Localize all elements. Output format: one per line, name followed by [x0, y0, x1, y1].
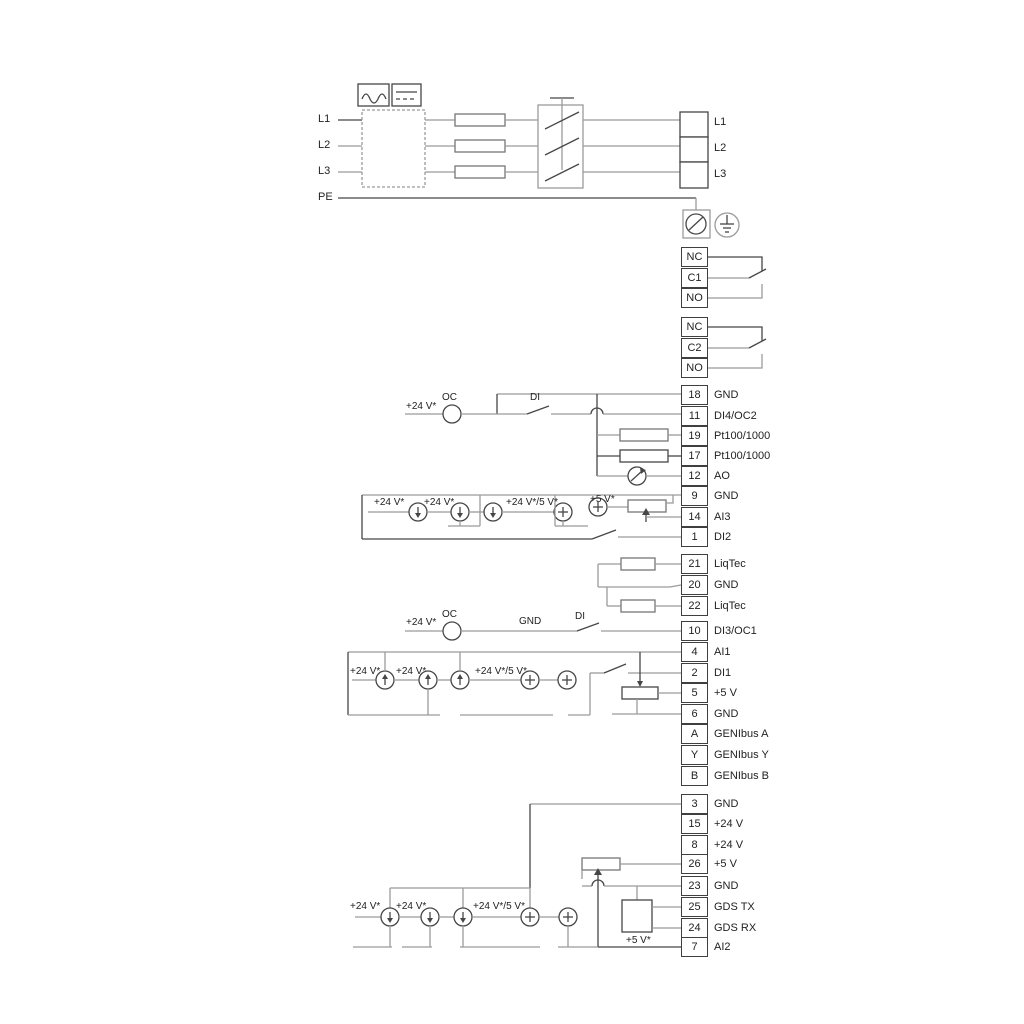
wiring-diagram: L1 L2 L3 PE L1 L2 L3 NC C1 NO NC C2 NO 1… [0, 0, 1024, 1024]
annotation-5v: +5 V* [590, 494, 615, 506]
terminal-label-26: +5 V [714, 858, 737, 871]
liqtec-circuit [598, 558, 681, 612]
terminal-number: 22 [688, 600, 700, 612]
open-collector-circle-icon [443, 405, 461, 423]
terminal-cell-14: 14 [681, 507, 708, 527]
relay2-terminal-c2: C2 [681, 338, 708, 358]
annotation-24v: +24 V* [406, 401, 436, 413]
terminal-cell-19: 19 [681, 426, 708, 446]
power-in-label-l2: L2 [318, 139, 330, 152]
resistor-icon [620, 429, 668, 441]
terminal-number: 3 [691, 798, 697, 810]
terminal-label-12: AO [714, 470, 730, 483]
relay1-terminal-c1: C1 [681, 268, 708, 288]
digital-input-switch-icon [604, 664, 626, 673]
terminal-label-11: DI4/OC2 [714, 410, 757, 423]
terminal-cell-23: 23 [681, 876, 708, 896]
terminal-label-6: GND [714, 708, 738, 721]
terminal-cell-6: 6 [681, 704, 708, 724]
terminal-cell-17: 17 [681, 446, 708, 466]
terminal-label-b: GENIbus B [714, 770, 769, 783]
terminal-number: 10 [688, 625, 700, 637]
terminal-cell-21: 21 [681, 554, 708, 574]
terminal-number: 25 [688, 901, 700, 913]
terminal-label-17: Pt100/1000 [714, 450, 770, 463]
annotation-oc: OC [442, 609, 457, 621]
annotation-24v: +24 V* [374, 497, 404, 509]
terminal-cell-4: 4 [681, 642, 708, 662]
terminal-label-20: GND [714, 579, 738, 592]
terminal-label-9: GND [714, 490, 738, 503]
annotation-oc: OC [442, 392, 457, 404]
terminal-number: 26 [688, 858, 700, 870]
mains-out-label-l2: L2 [714, 142, 726, 155]
annotation-24v-5v: +24 V*/5 V* [506, 497, 558, 509]
di3-oc1-circuit [405, 622, 681, 640]
terminal-number: 20 [688, 579, 700, 591]
terminal-cell-11: 11 [681, 406, 708, 426]
ai2-sensor-options [353, 908, 598, 947]
terminal-label-23: GND [714, 880, 738, 893]
mains-out-label-l1: L1 [714, 116, 726, 129]
potentiometer-icon [622, 687, 658, 699]
terminal-number: 14 [688, 511, 700, 523]
relay1-terminal-nc: NC [681, 247, 708, 267]
resistor-icon [621, 600, 655, 612]
terminal-number: 18 [688, 389, 700, 401]
relay-1-changeover-contact-icon [708, 257, 766, 298]
terminal-label-1: DI2 [714, 531, 731, 544]
annotation-24v: +24 V* [350, 666, 380, 678]
pe-ground [683, 210, 739, 238]
resistor-icon [620, 450, 668, 462]
annotation-24v: +24 V* [350, 901, 380, 913]
relay-terminal-label: NC [687, 251, 703, 263]
terminal-label-25: GDS TX [714, 901, 755, 914]
fuses [425, 114, 538, 178]
terminal-number: 2 [691, 667, 697, 679]
relay-terminal-label: C1 [687, 272, 701, 284]
annotation-24v: +24 V* [396, 666, 426, 678]
terminal-cell-25: 25 [681, 897, 708, 917]
terminal-label-a: GENIbus A [714, 728, 768, 741]
terminal-label-18: GND [714, 389, 738, 402]
power-in-label-l1: L1 [318, 113, 330, 126]
digital-input-switch-icon [527, 406, 549, 414]
relay2-terminal-nc: NC [681, 317, 708, 337]
terminal-number: 8 [691, 839, 697, 851]
terminal-cell-2: 2 [681, 663, 708, 683]
terminal-cell-24: 24 [681, 918, 708, 938]
terminal-cell-3: 3 [681, 794, 708, 814]
terminal-label-8: +24 V [714, 839, 743, 852]
relay-terminal-label: C2 [687, 342, 701, 354]
terminal-label-19: Pt100/1000 [714, 430, 770, 443]
terminal-cell-22: 22 [681, 596, 708, 616]
relay-2-changeover-contact-icon [708, 327, 766, 368]
potentiometer-icon [582, 858, 620, 870]
annotation-di: DI [530, 392, 540, 404]
fuse-icon [455, 114, 505, 126]
terminal-number: 15 [688, 818, 700, 830]
fuse-icon [455, 166, 505, 178]
terminal-cell-7: 7 [681, 937, 708, 957]
relay-terminal-label: NO [686, 292, 703, 304]
annotation-gnd: GND [519, 616, 541, 628]
terminal-label-22: LiqTec [714, 600, 746, 613]
terminal-number: 1 [691, 531, 697, 543]
terminal-label-14: AI3 [714, 511, 731, 524]
relay2-terminal-no: NO [681, 358, 708, 378]
power-in-label-pe: PE [318, 191, 333, 204]
terminal-number: 5 [691, 687, 697, 699]
terminal-cell-1: 1 [681, 527, 708, 547]
terminal-number: 7 [691, 941, 697, 953]
terminal-label-24: GDS RX [714, 922, 756, 935]
terminal-cell-a: A [681, 724, 708, 744]
relay-terminal-label: NC [687, 321, 703, 333]
terminal-label-4: AI1 [714, 646, 731, 659]
terminal-label-10: DI3/OC1 [714, 625, 757, 638]
terminal-cell-y: Y [681, 745, 708, 765]
terminal-number: Y [691, 749, 698, 761]
digital-input-switch-icon [577, 623, 599, 631]
terminal-cell-9: 9 [681, 486, 708, 506]
ao-circuit [597, 467, 681, 485]
terminal-cell-8: 8 [681, 835, 708, 855]
relay-terminal-label: NO [686, 362, 703, 374]
terminal-number: 24 [688, 922, 700, 934]
terminal-label-15: +24 V [714, 818, 743, 831]
mains-input-wires [338, 120, 696, 210]
annotation-24v: +24 V* [396, 901, 426, 913]
annotation-24v-5v: +24 V*/5 V* [473, 901, 525, 913]
fuse-icon [455, 140, 505, 152]
terminal-number: 21 [688, 558, 700, 570]
mains-terminal-block [680, 112, 708, 188]
ac-dc-converter [358, 84, 425, 187]
power-in-label-l3: L3 [318, 165, 330, 178]
wiring-lines [0, 0, 1024, 1024]
terminal-label-3: GND [714, 798, 738, 811]
relay1-terminal-no: NO [681, 288, 708, 308]
mains-out-label-l3: L3 [714, 168, 726, 181]
pt100-sensor-circuits [597, 429, 681, 462]
dc-box [392, 84, 421, 106]
terminal-number: 6 [691, 708, 697, 720]
terminal-cell-18: 18 [681, 385, 708, 405]
annotation-24v: +24 V* [424, 497, 454, 509]
terminal-label-y: GENIbus Y [714, 749, 769, 762]
terminal-number: 19 [688, 430, 700, 442]
terminal-label-21: LiqTec [714, 558, 746, 571]
digital-input-switch-icon [592, 530, 616, 539]
terminal-cell-12: 12 [681, 466, 708, 486]
resistor-icon [621, 558, 655, 570]
ai1-sensor-options [348, 652, 681, 715]
terminal-number: B [691, 770, 698, 782]
filter-box [362, 110, 425, 187]
annotation-24v-5v: +24 V*/5 V* [475, 666, 527, 678]
terminal-cell-5: 5 [681, 683, 708, 703]
terminal-number: 17 [688, 450, 700, 462]
terminal-label-2: DI1 [714, 667, 731, 680]
terminal-number: 12 [688, 470, 700, 482]
terminal-number: A [691, 728, 698, 740]
annotation-di: DI [575, 611, 585, 623]
terminal-number: 4 [691, 646, 697, 658]
terminal-number: 11 [689, 410, 700, 422]
terminal-label-7: AI2 [714, 941, 731, 954]
terminal-cell-10: 10 [681, 621, 708, 641]
terminal-cell-20: 20 [681, 575, 708, 595]
terminal-cell-b: B [681, 766, 708, 786]
gds-sensor-box [622, 900, 652, 932]
terminal-number: 23 [688, 880, 700, 892]
terminal-cell-26: 26 [681, 854, 708, 874]
terminal-number: 9 [691, 490, 697, 502]
terminal-cell-15: 15 [681, 814, 708, 834]
annotation-5v: +5 V* [626, 935, 651, 947]
annotation-24v: +24 V* [406, 617, 436, 629]
terminal-label-5: +5 V [714, 687, 737, 700]
main-disconnect-switch [538, 98, 680, 188]
open-collector-circle-icon [443, 622, 461, 640]
